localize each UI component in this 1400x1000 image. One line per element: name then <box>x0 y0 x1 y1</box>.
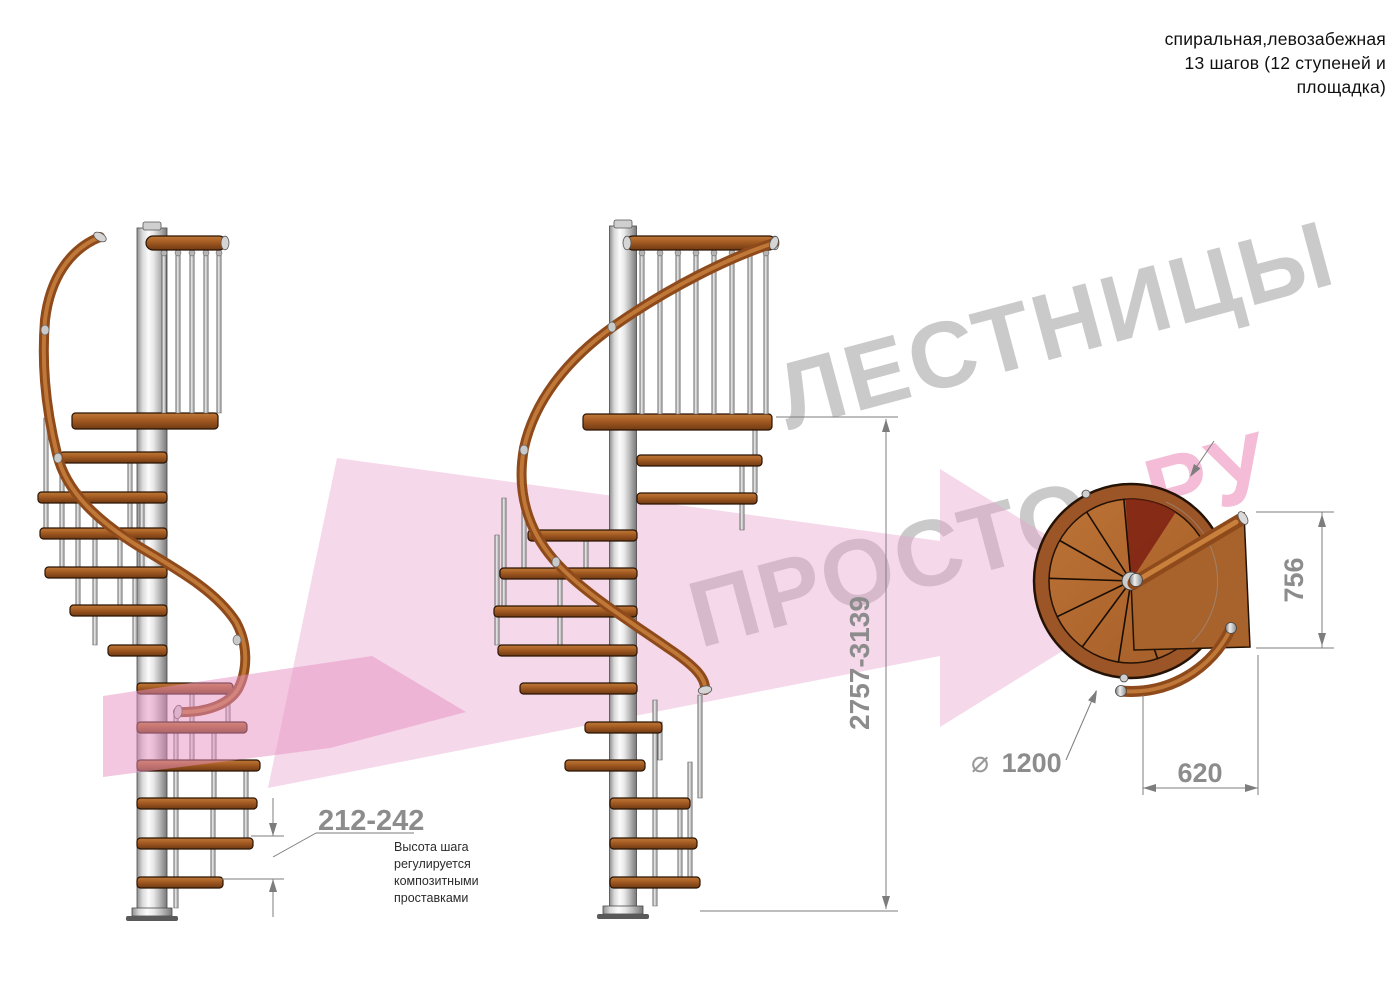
baluster-rod <box>176 250 180 413</box>
rail-joint <box>552 557 560 567</box>
title-line-3: площадка) <box>1165 75 1386 99</box>
baluster-joint <box>657 250 663 256</box>
staircase-drawing: ЛЕСТНИЦЫ ПРОСТО .РУ 212-242 2757-3139 75… <box>0 0 1400 1000</box>
baluster-rod <box>76 490 80 605</box>
tread <box>585 722 662 733</box>
tread <box>498 645 637 656</box>
baluster-joint <box>175 250 181 256</box>
column-cap <box>143 222 161 230</box>
tread <box>137 838 253 849</box>
base-plate <box>597 914 649 919</box>
tread <box>60 452 167 463</box>
baluster-joint <box>203 250 209 256</box>
baluster-joint <box>711 250 717 256</box>
baluster-rod <box>698 695 702 798</box>
baluster-joint <box>693 250 699 256</box>
top-handrail <box>146 236 226 250</box>
title-line-1: спиральная,левозабежная <box>1165 27 1386 51</box>
tread <box>520 683 637 694</box>
baluster-rod <box>217 250 221 413</box>
drawing-title: спиральная,левозабежная 13 шагов (12 сту… <box>1165 27 1386 99</box>
baluster-rod <box>712 250 716 414</box>
tread <box>137 877 223 888</box>
plan-rail-ball <box>1226 623 1237 634</box>
baluster-rod <box>502 498 506 606</box>
dim-tread-width: 620 <box>1177 758 1222 788</box>
plan-rim-stud <box>1082 490 1090 498</box>
dim-total-height: 2757-3139 <box>844 596 875 730</box>
baluster-joint <box>189 250 195 256</box>
diameter-symbol: ⌀ <box>971 746 989 779</box>
note-line-3: композитными <box>394 873 479 890</box>
baluster-rod <box>748 250 752 414</box>
rail-end-cap <box>221 236 229 250</box>
baluster-rod <box>658 250 662 414</box>
diameter-value: 1200 <box>1002 748 1062 778</box>
plan-rim-stud <box>1120 674 1128 682</box>
dimension-arrow <box>1318 514 1326 527</box>
tread <box>45 567 167 578</box>
step-height-note: Высота шага регулируется композитными пр… <box>394 839 479 907</box>
column-cap <box>614 220 632 228</box>
rail-joint <box>41 325 49 335</box>
baluster-joint <box>675 250 681 256</box>
dimension-arrow <box>1143 784 1156 792</box>
note-line-4: проставками <box>394 890 479 907</box>
rail-joint <box>608 322 616 332</box>
dimension-arrow <box>269 879 277 892</box>
baluster-rod <box>764 250 768 414</box>
tread <box>38 492 167 503</box>
note-line-2: регулируется <box>394 856 479 873</box>
tread <box>637 455 762 466</box>
tread <box>40 528 167 539</box>
tread <box>72 413 218 429</box>
base-plate <box>126 916 178 921</box>
tread <box>637 493 757 504</box>
tread <box>610 798 690 809</box>
baluster-rod <box>688 762 692 878</box>
baluster-rod <box>495 535 499 645</box>
dimension-line <box>273 833 316 857</box>
rail-end-cap <box>623 236 631 250</box>
rail-joint <box>520 445 528 455</box>
rail-joint <box>54 453 62 463</box>
tread <box>108 645 167 656</box>
tread <box>137 798 257 809</box>
tread <box>70 605 167 616</box>
baluster-joint <box>161 250 167 256</box>
baluster-joint <box>216 250 222 256</box>
baluster-joint <box>639 250 645 256</box>
baluster-rod <box>730 250 734 414</box>
tread <box>610 838 697 849</box>
dimension-arrow <box>1245 784 1258 792</box>
title-line-2: 13 шагов (12 ступеней и <box>1165 51 1386 75</box>
drawing-canvas: ЛЕСТНИЦЫ ПРОСТО .РУ 212-242 2757-3139 75… <box>0 0 1400 1000</box>
dimension-arrow <box>1318 633 1326 646</box>
plan-hub-ball <box>1130 574 1143 587</box>
dim-diameter: ⌀ 1200 <box>971 746 1062 779</box>
tread <box>565 760 645 771</box>
dimension-arrow <box>269 823 277 836</box>
dimension-arrow <box>882 896 890 909</box>
note-line-1: Высота шага <box>394 839 479 856</box>
plan-rail-ball <box>1116 686 1127 697</box>
rail-joint <box>233 635 241 645</box>
baluster-rod <box>190 250 194 413</box>
baluster-rod <box>676 250 680 414</box>
baluster-rod <box>640 250 644 414</box>
dimension-arrow <box>1088 688 1101 703</box>
watermark-word-lestnitsy: ЛЕСТНИЦЫ <box>766 200 1345 449</box>
dim-step-height: 212-242 <box>318 805 424 837</box>
baluster-rod <box>204 250 208 413</box>
tread <box>610 877 700 888</box>
dim-landing-depth: 756 <box>1279 557 1309 602</box>
baluster-rod <box>162 250 166 413</box>
side-view-left-staircase <box>38 222 260 921</box>
column-flange <box>603 906 643 914</box>
column-flange <box>132 908 172 916</box>
tread <box>583 414 772 430</box>
